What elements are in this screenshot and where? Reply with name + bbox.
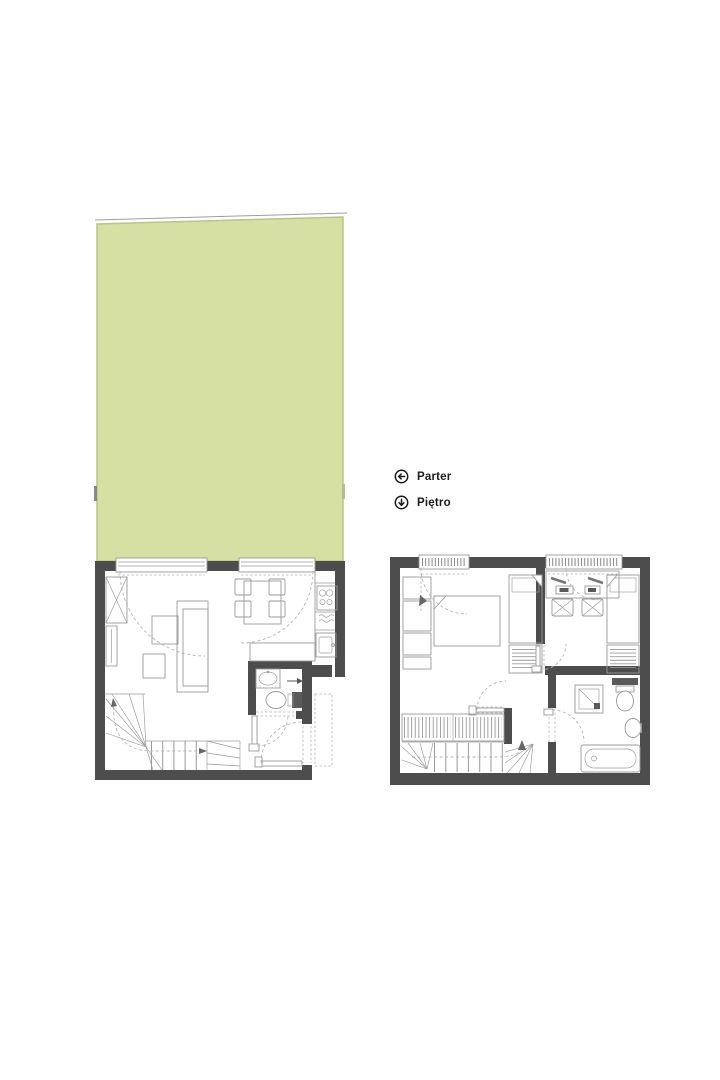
garden-area	[94, 213, 347, 561]
legend-item-parter: Parter	[394, 469, 451, 484]
kitchen-counter	[250, 571, 335, 661]
terrace-door-swing	[241, 571, 313, 643]
wc-door	[249, 712, 296, 751]
upper-floor-plan	[390, 555, 650, 785]
shower	[575, 685, 603, 713]
entry-mat	[315, 694, 332, 766]
kids-bed-right	[607, 575, 639, 643]
toilet	[266, 692, 302, 709]
wc-sink	[256, 669, 280, 688]
double-bed	[434, 596, 500, 646]
desk-chairs	[552, 599, 603, 616]
floor-plans-graphic	[0, 0, 720, 1080]
balcony-door-swing	[120, 571, 205, 656]
window	[419, 555, 469, 574]
legend-label-pietro: Piętro	[417, 497, 451, 509]
floor-plan-page: Parter Piętro	[0, 0, 720, 1080]
fence-post	[94, 486, 97, 501]
radiator	[106, 626, 117, 666]
cooktop	[317, 586, 337, 610]
hall-wardrobe	[402, 714, 504, 741]
kitchen-sink	[316, 633, 336, 657]
dining-set	[235, 579, 285, 624]
entrance-door	[255, 722, 311, 767]
fence-post	[342, 484, 345, 499]
arrow-left-circle-icon	[394, 469, 409, 484]
ground-floor-plan	[95, 558, 345, 780]
window	[239, 558, 315, 575]
bedroom-door	[469, 681, 506, 715]
staircase	[402, 740, 533, 773]
bathtub	[581, 745, 640, 772]
arrow-down-circle-icon	[394, 495, 409, 510]
bathroom-sink	[625, 719, 642, 738]
dishwasher	[319, 615, 334, 623]
vent-arrow	[287, 678, 303, 684]
window	[116, 558, 207, 575]
legend-label-parter: Parter	[417, 471, 451, 483]
wardrobe	[106, 577, 127, 623]
plan-legend: Parter Piętro	[394, 469, 451, 510]
balcony-door-swing	[419, 568, 467, 614]
toilet	[612, 678, 638, 711]
legend-item-pietro: Piętro	[394, 495, 451, 510]
coffee-table	[143, 654, 165, 678]
exterior-walls	[95, 561, 345, 780]
staircase	[105, 694, 240, 770]
window-swing	[566, 568, 598, 600]
